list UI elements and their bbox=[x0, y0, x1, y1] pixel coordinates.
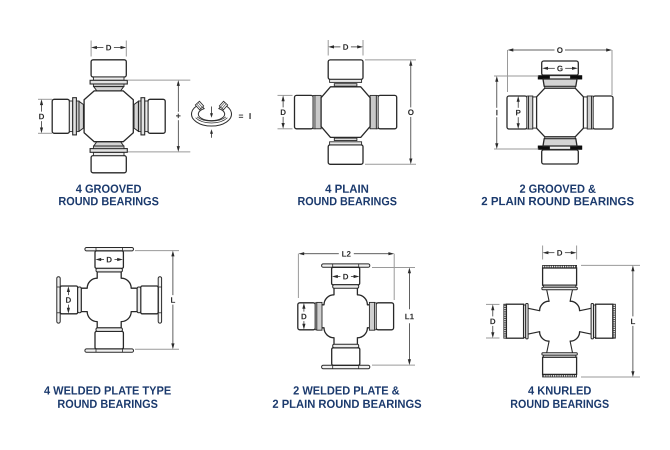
svg-text:ROUND BEARINGS: ROUND BEARINGS bbox=[297, 194, 397, 208]
svg-text:2 PLAIN ROUND BEARINGS: 2 PLAIN ROUND BEARINGS bbox=[481, 194, 634, 208]
svg-text:D: D bbox=[39, 112, 45, 121]
svg-text:= I: = I bbox=[238, 111, 252, 121]
svg-text:D: D bbox=[557, 249, 563, 258]
svg-text:O: O bbox=[557, 46, 563, 55]
svg-text:O: O bbox=[408, 108, 414, 117]
svg-text:D: D bbox=[343, 272, 349, 281]
svg-text:2 PLAIN ROUND BEARINGS: 2 PLAIN ROUND BEARINGS bbox=[272, 397, 421, 411]
svg-text:L2: L2 bbox=[342, 250, 352, 259]
svg-text:D: D bbox=[490, 317, 496, 326]
svg-text:P: P bbox=[516, 108, 522, 117]
svg-text:ROUND BEARINGS: ROUND BEARINGS bbox=[510, 397, 609, 411]
svg-text:2 WELDED PLATE &: 2 WELDED PLATE & bbox=[293, 383, 400, 397]
svg-text:L: L bbox=[170, 296, 175, 305]
svg-text:4 KNURLED: 4 KNURLED bbox=[528, 383, 592, 397]
svg-text:D: D bbox=[106, 43, 112, 52]
svg-text:L1: L1 bbox=[405, 312, 415, 321]
svg-text:ROUND BEARINGS: ROUND BEARINGS bbox=[58, 194, 159, 208]
svg-text:D: D bbox=[301, 312, 307, 321]
svg-text:+: + bbox=[176, 111, 181, 121]
svg-text:ROUND BEARINGS: ROUND BEARINGS bbox=[57, 397, 158, 411]
svg-text:D: D bbox=[66, 296, 72, 305]
svg-text:4 WELDED PLATE TYPE: 4 WELDED PLATE TYPE bbox=[44, 383, 171, 397]
svg-text:L: L bbox=[630, 317, 635, 326]
svg-text:D: D bbox=[106, 255, 112, 264]
svg-text:I: I bbox=[496, 108, 498, 117]
svg-text:D: D bbox=[343, 43, 349, 52]
svg-text:D: D bbox=[280, 108, 286, 117]
svg-text:G: G bbox=[557, 64, 563, 73]
